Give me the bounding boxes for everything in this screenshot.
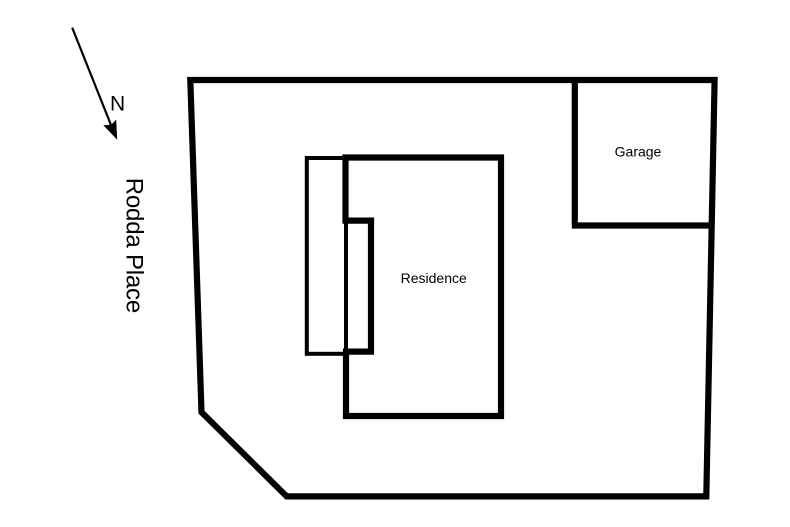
svg-text:Residence: Residence (401, 270, 467, 286)
svg-text:Garage: Garage (615, 144, 662, 160)
svg-text:Rodda Place: Rodda Place (121, 178, 148, 313)
svg-text:N: N (110, 93, 125, 116)
